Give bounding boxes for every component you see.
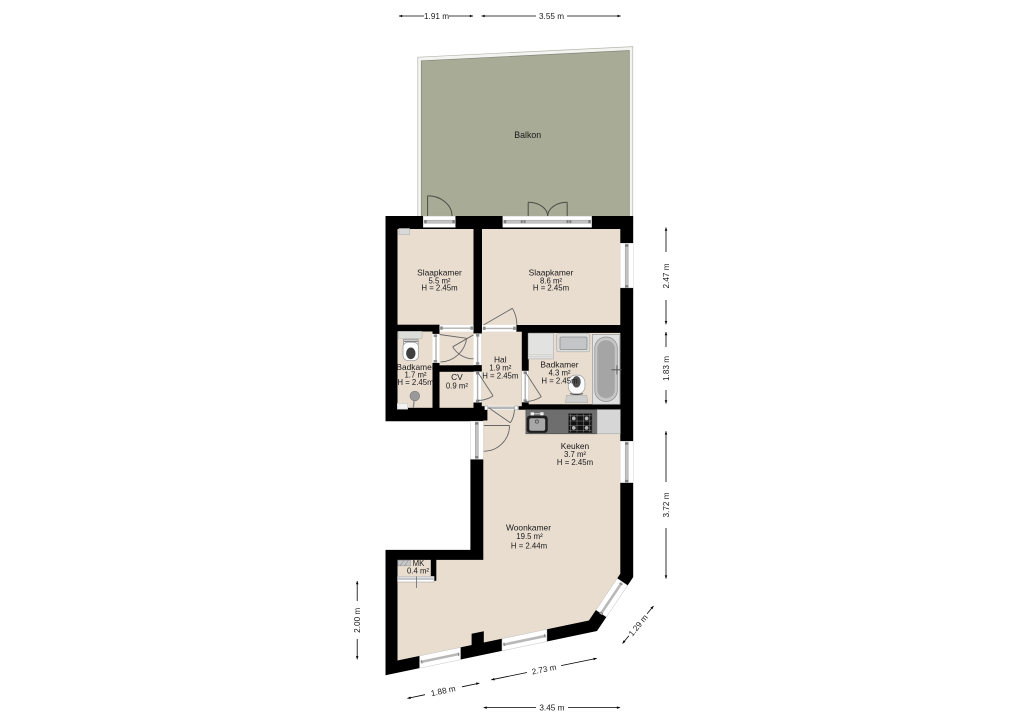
svg-text:H = 2.45m: H = 2.45m <box>541 376 577 385</box>
svg-text:H = 2.45m: H = 2.45m <box>557 458 593 467</box>
svg-text:H = 2.45m: H = 2.45m <box>482 371 518 380</box>
svg-text:0.4 m²: 0.4 m² <box>407 567 429 576</box>
svg-text:H = 2.45m: H = 2.45m <box>397 378 433 387</box>
svg-text:Balkon: Balkon <box>514 130 541 140</box>
svg-text:2.47 m: 2.47 m <box>662 263 671 288</box>
svg-text:H = 2.45m: H = 2.45m <box>533 284 569 293</box>
svg-text:H = 2.44m: H = 2.44m <box>511 542 547 551</box>
svg-text:1.83 m: 1.83 m <box>662 356 671 381</box>
svg-text:19.5 m²: 19.5 m² <box>516 532 543 541</box>
svg-text:3.55 m: 3.55 m <box>539 12 564 21</box>
svg-text:3.72 m: 3.72 m <box>662 492 671 517</box>
svg-text:3.45 m: 3.45 m <box>539 704 564 713</box>
svg-text:H = 2.45m: H = 2.45m <box>421 284 457 293</box>
svg-text:1.91 m: 1.91 m <box>424 12 449 21</box>
svg-text:2.00 m: 2.00 m <box>353 608 362 633</box>
svg-text:Woonkamer: Woonkamer <box>506 522 551 532</box>
svg-text:0.9 m²: 0.9 m² <box>446 381 468 390</box>
